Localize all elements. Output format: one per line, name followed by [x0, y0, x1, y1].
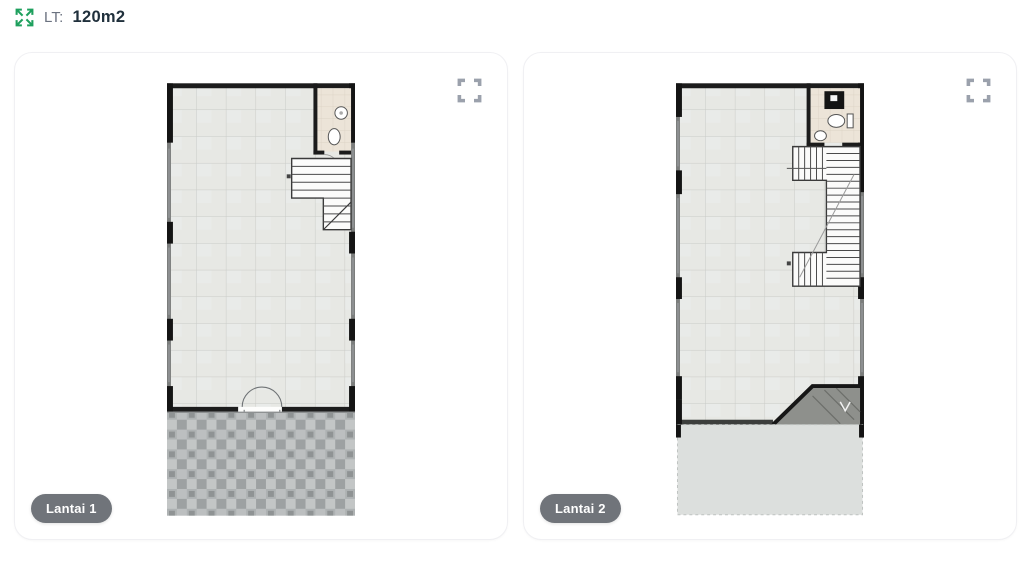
floor-badge: Lantai 2 — [540, 494, 621, 523]
bathroom — [807, 83, 860, 146]
property-floorplan-section: LT: 120m2 — [0, 0, 1024, 566]
sink — [815, 131, 827, 141]
expand-arrows-icon — [14, 7, 35, 28]
land-area-label: LT: — [44, 9, 64, 26]
carport-paving — [167, 412, 355, 516]
floorplan-card-1: Lantai 1 — [14, 52, 508, 540]
land-area-header: LT: 120m2 — [14, 7, 125, 28]
fullscreen-button[interactable] — [965, 77, 992, 104]
floorplan-gallery: Lantai 1 — [14, 52, 1017, 540]
floor-plan-lantai-2[interactable] — [676, 81, 864, 518]
floorplan-card-2: Lantai 2 — [523, 52, 1017, 540]
lower-roof — [676, 425, 864, 515]
toilet — [828, 114, 845, 127]
fullscreen-icon — [965, 77, 992, 104]
floor-plan-svg-2 — [676, 81, 864, 518]
toilet — [328, 129, 340, 145]
floor-plan-lantai-1[interactable] — [167, 81, 355, 518]
floor-badge: Lantai 1 — [31, 494, 112, 523]
fullscreen-button[interactable] — [456, 77, 483, 104]
floor-plan-svg-1 — [167, 81, 355, 518]
fullscreen-icon — [456, 77, 483, 104]
land-area-value: 120m2 — [73, 8, 126, 27]
